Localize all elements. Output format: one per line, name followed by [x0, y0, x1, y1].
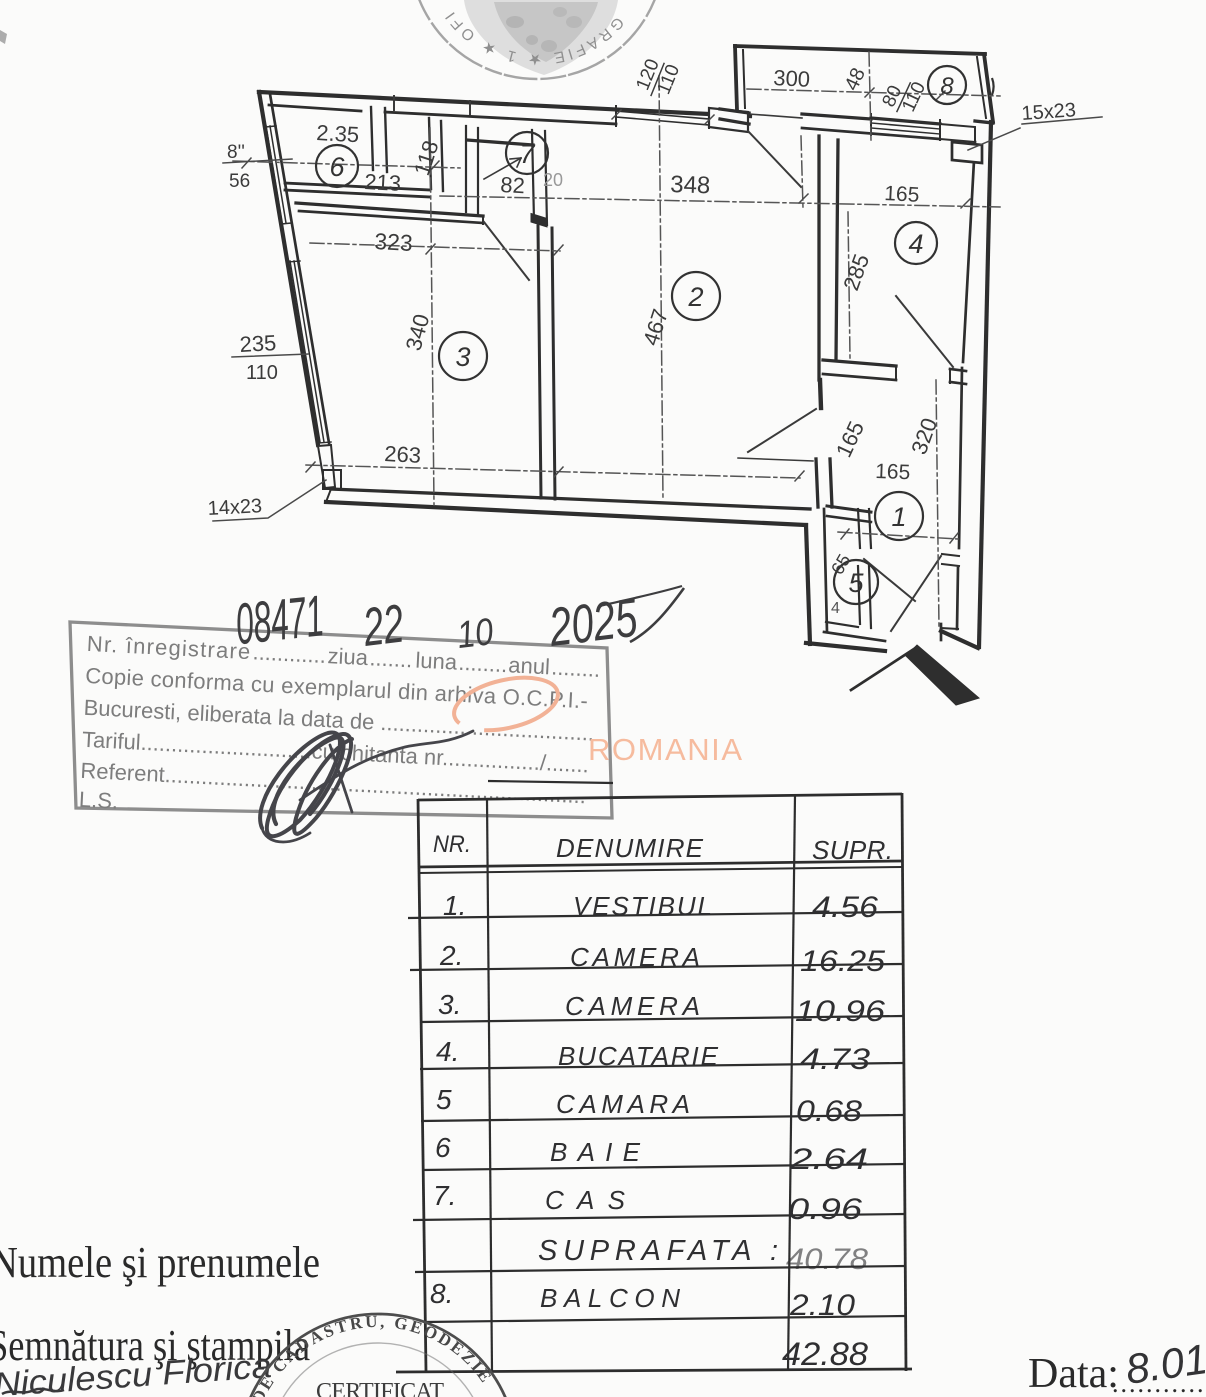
svg-text:1.: 1.	[443, 890, 466, 921]
svg-text:2: 2	[687, 282, 703, 312]
svg-text:3: 3	[455, 342, 470, 372]
svg-text:2025: 2025	[545, 588, 641, 658]
svg-text:42.88: 42.88	[782, 1336, 868, 1372]
svg-text:2.10: 2.10	[789, 1289, 855, 1322]
svg-text:323: 323	[374, 228, 414, 256]
svg-text:4.73: 4.73	[800, 1043, 870, 1076]
svg-text:4.: 4.	[436, 1036, 459, 1067]
svg-text:5: 5	[848, 568, 864, 598]
svg-text:14x23: 14x23	[207, 495, 263, 520]
svg-text:8: 8	[940, 73, 954, 100]
svg-text:10.96: 10.96	[795, 995, 885, 1028]
svg-text:300: 300	[773, 65, 811, 92]
svg-text:Data:: Data:	[1028, 1351, 1119, 1397]
svg-text:110: 110	[246, 362, 278, 384]
svg-text:15x23: 15x23	[1021, 99, 1077, 125]
svg-text:4: 4	[831, 600, 840, 617]
svg-text:4.56: 4.56	[812, 891, 878, 924]
svg-text:VESTIBUL: VESTIBUL	[573, 891, 712, 921]
svg-text:20: 20	[543, 170, 563, 190]
svg-text:2.: 2.	[439, 940, 463, 971]
svg-text:22: 22	[359, 593, 407, 658]
svg-text:0.96: 0.96	[788, 1193, 862, 1226]
svg-text:8.: 8.	[430, 1278, 453, 1309]
svg-text:BUCATARIE: BUCATARIE	[558, 1041, 719, 1071]
svg-text:2.35: 2.35	[316, 120, 360, 147]
svg-text:7.: 7.	[433, 1180, 456, 1211]
svg-text:6: 6	[435, 1132, 451, 1163]
svg-text:NR.: NR.	[433, 831, 471, 858]
svg-text:ROMANIA: ROMANIA	[588, 732, 742, 767]
svg-text:2.64: 2.64	[789, 1143, 868, 1176]
svg-text:56: 56	[229, 171, 250, 192]
svg-text:6: 6	[329, 152, 345, 182]
svg-text:4: 4	[908, 229, 923, 259]
svg-text:L.S.: L.S.	[78, 787, 118, 814]
svg-text:16.25: 16.25	[800, 945, 885, 978]
svg-text:5: 5	[436, 1084, 452, 1115]
svg-text:165: 165	[884, 182, 920, 207]
svg-text:8'': 8''	[227, 142, 245, 163]
svg-text:82: 82	[500, 172, 526, 198]
svg-text:SUPR.: SUPR.	[812, 835, 893, 865]
svg-text:235: 235	[239, 330, 277, 357]
svg-text:08471: 08471	[232, 583, 326, 657]
svg-text:3.: 3.	[438, 989, 461, 1020]
svg-text:10: 10	[455, 611, 496, 657]
svg-text:7: 7	[519, 139, 535, 169]
svg-text:CERTIFICAT: CERTIFICAT	[316, 1379, 444, 1397]
svg-text:1: 1	[891, 502, 906, 532]
svg-text:348: 348	[670, 171, 711, 199]
svg-text:DENUMIRE: DENUMIRE	[556, 833, 704, 863]
svg-text:CAS: CAS	[545, 1185, 626, 1215]
svg-text:40.78: 40.78	[786, 1243, 868, 1276]
svg-text:Numele şi prenumele: Numele şi prenumele	[0, 1238, 320, 1287]
svg-text:165: 165	[875, 460, 911, 484]
svg-text:SUPRAFATA :: SUPRAFATA :	[538, 1235, 778, 1267]
svg-text:263: 263	[384, 441, 422, 468]
svg-text:0.68: 0.68	[796, 1095, 862, 1128]
svg-text:213: 213	[364, 169, 402, 196]
